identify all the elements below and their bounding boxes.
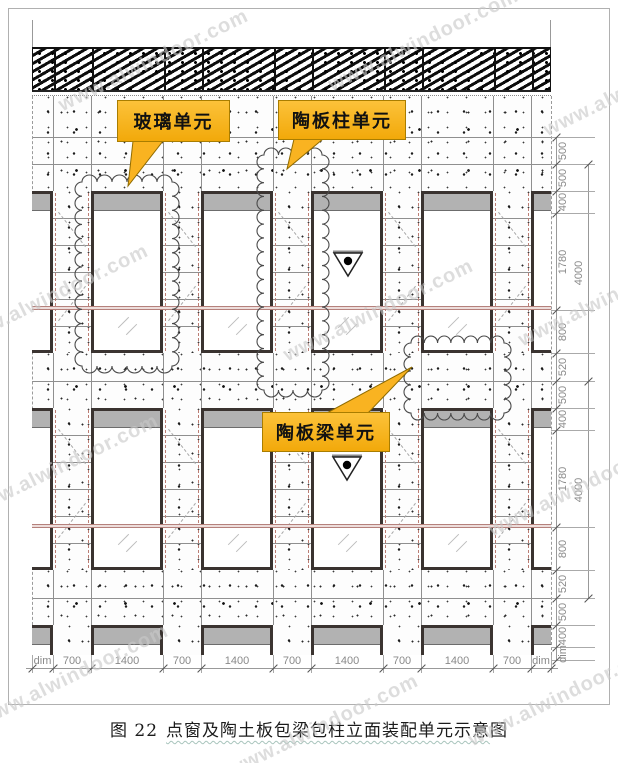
grid-stub — [32, 20, 33, 47]
slab-joint — [202, 49, 204, 90]
panel-joint — [493, 435, 531, 436]
glass-mark — [118, 317, 129, 328]
figure-caption-tail: 图 — [490, 721, 508, 741]
terracotta-pier-panel — [163, 625, 201, 655]
extension-line — [551, 353, 595, 354]
dimension-value: 800 — [557, 322, 569, 340]
glass-mark — [338, 317, 349, 328]
terracotta-pier-panel — [163, 191, 201, 353]
shadow-box-panel — [424, 194, 490, 211]
glass-mark — [456, 541, 467, 552]
drawing-left-edge — [32, 96, 33, 655]
callout-beam-unit: 陶板梁单元 — [262, 412, 390, 452]
panel-joint — [273, 96, 274, 191]
dimension-value: dim — [532, 655, 550, 667]
glass-mark — [228, 534, 239, 545]
panel-joint — [493, 489, 531, 490]
slab-joint — [274, 49, 276, 90]
setting-out-line — [528, 410, 529, 568]
terracotta-wall-band — [32, 353, 551, 408]
panel-joint — [383, 218, 421, 219]
window — [311, 625, 383, 655]
slab-joint — [54, 49, 56, 90]
extension-line — [311, 655, 312, 673]
diagonal-reference-line — [388, 503, 416, 538]
extension-line — [493, 655, 494, 673]
panel-joint — [493, 96, 494, 191]
drawing-right-edge — [551, 96, 552, 655]
panel-joint — [273, 326, 311, 327]
setting-out-line — [55, 193, 56, 351]
window — [91, 191, 163, 353]
dimension-value: 700 — [63, 655, 81, 667]
terracotta-pier-panel — [53, 625, 91, 655]
shadow-box-panel — [32, 194, 50, 211]
setting-out-line — [418, 410, 419, 568]
panel-joint — [493, 326, 531, 327]
window — [311, 191, 383, 353]
dimension-value: 1780 — [557, 249, 569, 273]
shadow-box-panel — [534, 628, 551, 645]
panel-joint — [163, 326, 201, 327]
panel-joint — [493, 299, 531, 300]
panel-joint — [383, 489, 421, 490]
panel-joint — [493, 218, 531, 219]
transom-line — [32, 306, 551, 310]
glass-mark — [228, 317, 239, 328]
extension-line — [551, 570, 595, 571]
shadow-box-panel — [204, 194, 270, 211]
panel-joint — [493, 516, 531, 517]
figure-caption-text: 点窗及陶土板包梁包柱立面装配单元示意 — [166, 721, 490, 741]
panel-joint — [531, 96, 532, 191]
dimension-value: 1780 — [557, 466, 569, 490]
shadow-box-panel — [94, 628, 160, 645]
window — [91, 625, 163, 655]
slab-joint — [494, 49, 496, 90]
extension-line — [551, 137, 595, 138]
glass-mark — [126, 324, 137, 335]
extension-line — [551, 527, 595, 528]
dimension-value: 520 — [557, 575, 569, 593]
callout-beam-unit-label: 陶板梁单元 — [276, 419, 376, 445]
setting-out-line — [198, 193, 199, 351]
panel-joint — [32, 164, 551, 165]
glass-mark — [448, 534, 459, 545]
window — [32, 625, 53, 655]
terracotta-pier-panel — [163, 408, 201, 570]
window — [91, 408, 163, 570]
dimension-value: 4000 — [573, 260, 585, 284]
window — [201, 191, 273, 353]
slab-joint — [384, 49, 386, 90]
terracotta-wall-band — [32, 570, 551, 625]
facade-assembly-figure: dim7001400700140070014007001400700dim500… — [0, 0, 618, 763]
glass-mark — [346, 541, 357, 552]
diagonal-reference-line — [58, 286, 86, 321]
setting-out-line — [528, 193, 529, 351]
panel-joint — [53, 96, 54, 191]
setting-out-line — [198, 410, 199, 568]
window — [421, 191, 493, 353]
dimension-value: 700 — [173, 655, 191, 667]
setting-out-line — [495, 410, 496, 568]
panel-joint — [163, 435, 201, 436]
panel-joint — [493, 543, 531, 544]
panel-joint — [383, 516, 421, 517]
diagonal-reference-line — [58, 503, 86, 538]
dimension-value: dim — [34, 655, 52, 667]
dimension-value: 500 — [557, 168, 569, 186]
diagonal-reference-line — [278, 286, 306, 321]
panel-joint — [273, 272, 311, 273]
window — [531, 408, 551, 570]
slab-underline — [32, 95, 551, 96]
shadow-box-panel — [314, 194, 380, 211]
grid-stub — [550, 20, 551, 47]
shadow-box-panel — [204, 628, 270, 645]
setting-out-line — [418, 193, 419, 351]
shadow-box-panel — [314, 628, 380, 645]
extension-line — [201, 655, 202, 673]
panel-joint — [163, 299, 201, 300]
window — [421, 408, 493, 570]
panel-joint — [273, 299, 311, 300]
shadow-box-panel — [204, 411, 270, 428]
extension-line — [551, 430, 595, 431]
slab-joint — [422, 49, 424, 90]
callout-glass-unit: 玻璃单元 — [117, 100, 230, 142]
panel-joint — [273, 543, 311, 544]
extension-line — [551, 310, 595, 311]
panel-joint — [493, 272, 531, 273]
glass-mark — [118, 534, 129, 545]
glass-mark — [338, 534, 349, 545]
panel-joint — [53, 489, 91, 490]
diagonal-reference-line — [278, 503, 306, 538]
dimension-value: 400 — [557, 193, 569, 211]
extension-line — [163, 655, 164, 673]
dimension-value: dim — [557, 645, 569, 663]
callout-column-unit: 陶板柱单元 — [278, 100, 406, 140]
slab-joint — [532, 49, 534, 90]
window — [201, 625, 273, 655]
window — [32, 191, 53, 353]
shadow-box-panel — [32, 411, 50, 428]
panel-joint — [53, 435, 91, 436]
setting-out-line — [165, 193, 166, 351]
setting-out-line — [88, 410, 89, 568]
dimension-value: 4000 — [573, 477, 585, 501]
diagonal-reference-line — [388, 286, 416, 321]
setting-out-line — [308, 193, 309, 351]
diagonal-reference-line — [168, 503, 196, 538]
panel-joint — [273, 218, 311, 219]
glass-mark — [236, 541, 247, 552]
shadow-box-panel — [424, 411, 490, 428]
extension-line — [551, 213, 595, 214]
diagonal-reference-line — [498, 286, 526, 321]
panel-joint — [53, 516, 91, 517]
panel-joint — [32, 381, 551, 382]
setting-out-line — [275, 193, 276, 351]
panel-joint — [383, 326, 421, 327]
slab-joint — [312, 49, 314, 90]
panel-joint — [163, 272, 201, 273]
terracotta-pier-panel — [53, 191, 91, 353]
glass-mark — [448, 317, 459, 328]
extension-line — [273, 655, 274, 673]
panel-joint — [163, 218, 201, 219]
window — [32, 408, 53, 570]
terracotta-pier-panel — [493, 191, 531, 353]
setting-out-line — [88, 193, 89, 351]
dimension-value: 500 — [557, 141, 569, 159]
dimension-value: 800 — [557, 539, 569, 557]
diagonal-reference-line — [168, 286, 196, 321]
dimension-value: 400 — [557, 627, 569, 645]
panel-joint — [163, 543, 201, 544]
panel-joint — [53, 326, 91, 327]
glass-mark — [346, 324, 357, 335]
panel-joint — [273, 516, 311, 517]
terracotta-pier-panel — [273, 191, 311, 353]
dimension-value: 1400 — [335, 655, 359, 667]
slab-hatch-band — [32, 47, 551, 92]
figure-caption: 图 22点窗及陶土板包梁包柱立面装配单元示意图 — [0, 716, 618, 741]
extension-line — [53, 655, 54, 673]
panel-joint — [163, 516, 201, 517]
dimension-value: 500 — [557, 385, 569, 403]
panel-joint — [53, 272, 91, 273]
shadow-box-panel — [424, 628, 490, 645]
panel-joint — [91, 96, 92, 191]
panel-joint — [383, 299, 421, 300]
shadow-box-panel — [32, 628, 50, 645]
panel-joint — [53, 543, 91, 544]
dimension-value: 700 — [503, 655, 521, 667]
dimension-bottom-line — [26, 668, 558, 669]
panel-joint — [163, 489, 201, 490]
dimension-value: 400 — [557, 410, 569, 428]
dimension-value: 1400 — [445, 655, 469, 667]
terracotta-pier-panel — [273, 625, 311, 655]
glass-mark — [456, 324, 467, 335]
window — [531, 625, 551, 655]
setting-out-line — [55, 410, 56, 568]
extension-line — [421, 655, 422, 673]
extension-line — [383, 655, 384, 673]
terracotta-pier-panel — [383, 625, 421, 655]
slab-joint — [92, 49, 94, 90]
glass-mark — [126, 541, 137, 552]
slab-joint — [164, 49, 166, 90]
callout-glass-unit-label: 玻璃单元 — [134, 108, 214, 134]
dimension-value: 520 — [557, 358, 569, 376]
panel-joint — [421, 96, 422, 191]
diagonal-reference-line — [498, 503, 526, 538]
window — [531, 191, 551, 353]
panel-joint — [383, 272, 421, 273]
figure-number: 图 22 — [110, 721, 158, 741]
dimension-value: 1400 — [115, 655, 139, 667]
shadow-box-panel — [534, 411, 551, 428]
shadow-box-panel — [94, 411, 160, 428]
panel-joint — [32, 598, 551, 599]
window — [421, 625, 493, 655]
shadow-box-panel — [534, 194, 551, 211]
dimension-value: 700 — [283, 655, 301, 667]
dimension-value: 1400 — [225, 655, 249, 667]
callout-column-unit-label: 陶板柱单元 — [292, 107, 392, 133]
terracotta-pier-panel — [53, 408, 91, 570]
setting-out-line — [385, 193, 386, 351]
transom-line — [32, 524, 551, 528]
panel-joint — [273, 489, 311, 490]
dimension-value: 500 — [557, 602, 569, 620]
terracotta-pier-panel — [493, 625, 531, 655]
terracotta-pier-panel — [493, 408, 531, 570]
shadow-box-panel — [94, 194, 160, 211]
panel-joint — [383, 543, 421, 544]
setting-out-line — [495, 193, 496, 351]
panel-joint — [53, 218, 91, 219]
setting-out-line — [165, 410, 166, 568]
panel-joint — [53, 299, 91, 300]
terracotta-pier-panel — [383, 191, 421, 353]
extension-line — [91, 655, 92, 673]
dimension-value: 700 — [393, 655, 411, 667]
glass-mark — [236, 324, 247, 335]
